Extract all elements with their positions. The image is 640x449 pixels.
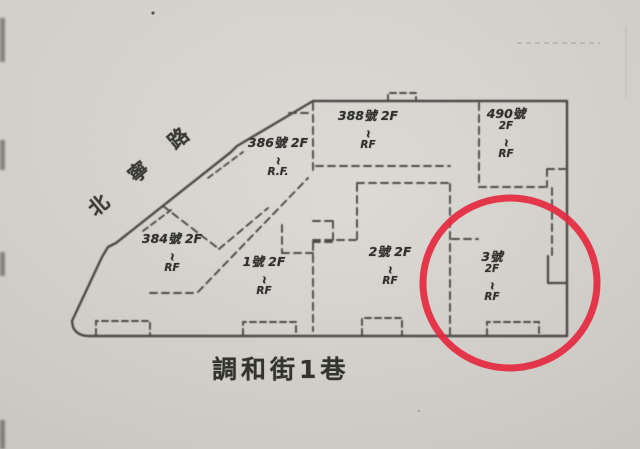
lot-number: 1號 2F [222, 255, 306, 269]
scan-edge-smudge [0, 252, 5, 276]
floor-range-tilde: ~ [382, 265, 399, 274]
floor-range-tilde: ~ [256, 275, 273, 284]
lot-number: 388號 2F [326, 109, 410, 123]
lot-label-388: 388號 2F ~ RF [326, 109, 410, 151]
lot-label-2: 2號 2F ~ RF [348, 245, 432, 287]
floor-range-tilde: ~ [270, 156, 287, 165]
floor-range-tilde: ~ [164, 252, 181, 261]
floor-top: RF [478, 149, 534, 160]
lot-label-386: 386號 2F ~ R.F. [230, 136, 326, 178]
floor-bottom: 2F [462, 264, 522, 275]
lot-label-3: 3號 2F ~ RF [462, 250, 522, 303]
floor-range-tilde: ~ [484, 281, 501, 290]
scan-edge-smudge [0, 140, 5, 170]
floor-top: RF [348, 276, 432, 287]
floor-range-tilde: ~ [360, 129, 377, 138]
lot-label-1: 1號 2F ~ RF [222, 255, 306, 297]
lot-number: 386號 2F [230, 136, 326, 150]
lot-number: 490號 [478, 107, 534, 121]
floor-top: R.F. [230, 167, 326, 178]
floor-top: RF [222, 286, 306, 297]
floor-range-tilde: ~ [498, 138, 515, 147]
street-label-bottom: 調和街1巷 [212, 350, 372, 386]
scanned-map-page: 北寧路 調和街1巷 384號 2F ~ RF 386號 2F ~ R.F. 38… [0, 0, 640, 449]
lot-label-384: 384號 2F ~ RF [130, 232, 214, 274]
lot-number: 2號 2F [348, 245, 432, 259]
floor-top: RF [462, 292, 522, 303]
scan-edge-smudge [0, 18, 5, 62]
lot-label-490: 490號 2F ~ RF [478, 107, 534, 160]
lot-number: 3號 [462, 250, 522, 264]
lot-number: 384號 2F [130, 232, 214, 246]
scan-edge-smudge [0, 420, 5, 449]
floor-top: RF [130, 263, 214, 274]
floor-top: RF [326, 140, 410, 151]
floor-bottom: 2F [478, 121, 534, 132]
